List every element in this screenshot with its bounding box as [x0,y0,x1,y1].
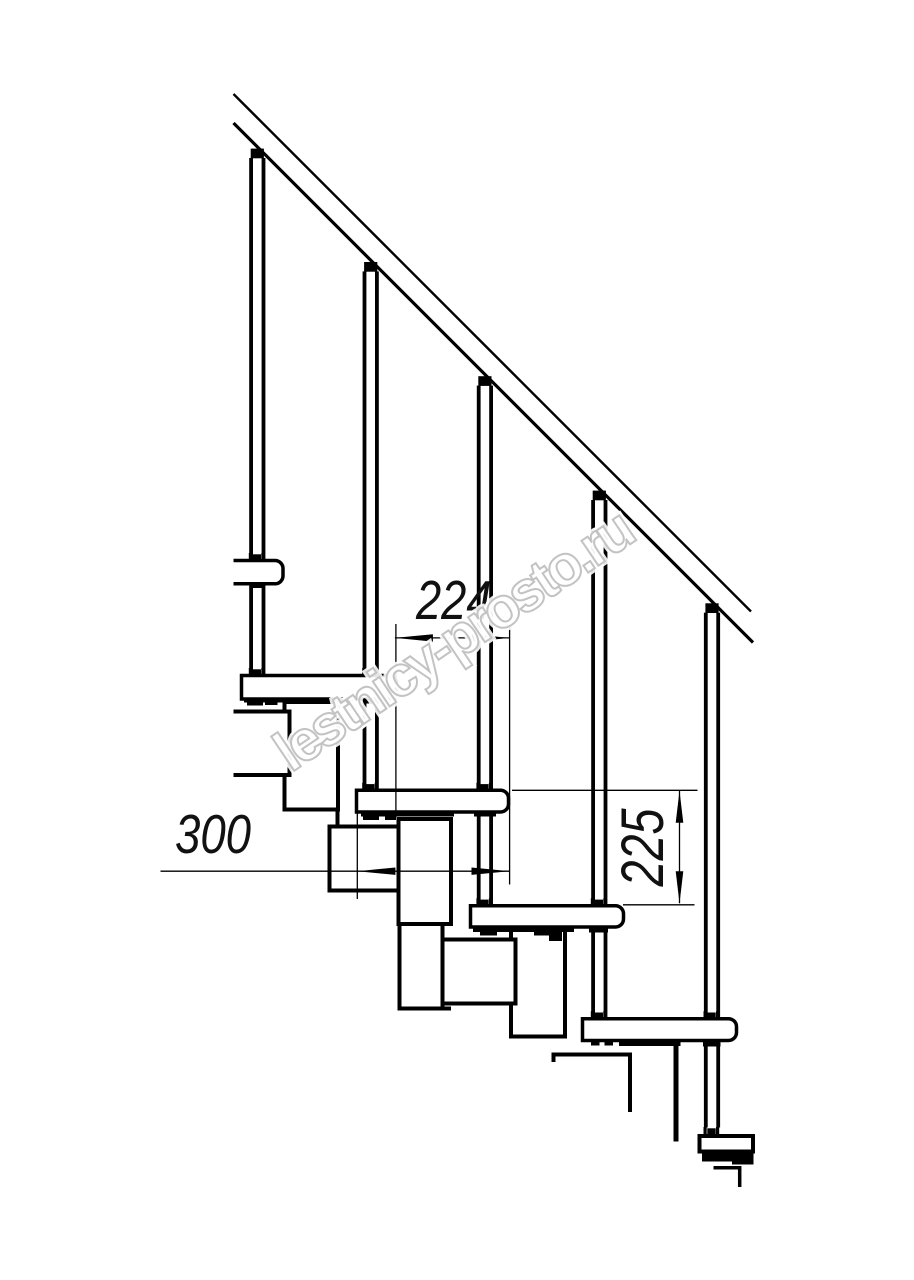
svg-text:225: 225 [609,808,676,887]
svg-text:300: 300 [175,803,251,865]
